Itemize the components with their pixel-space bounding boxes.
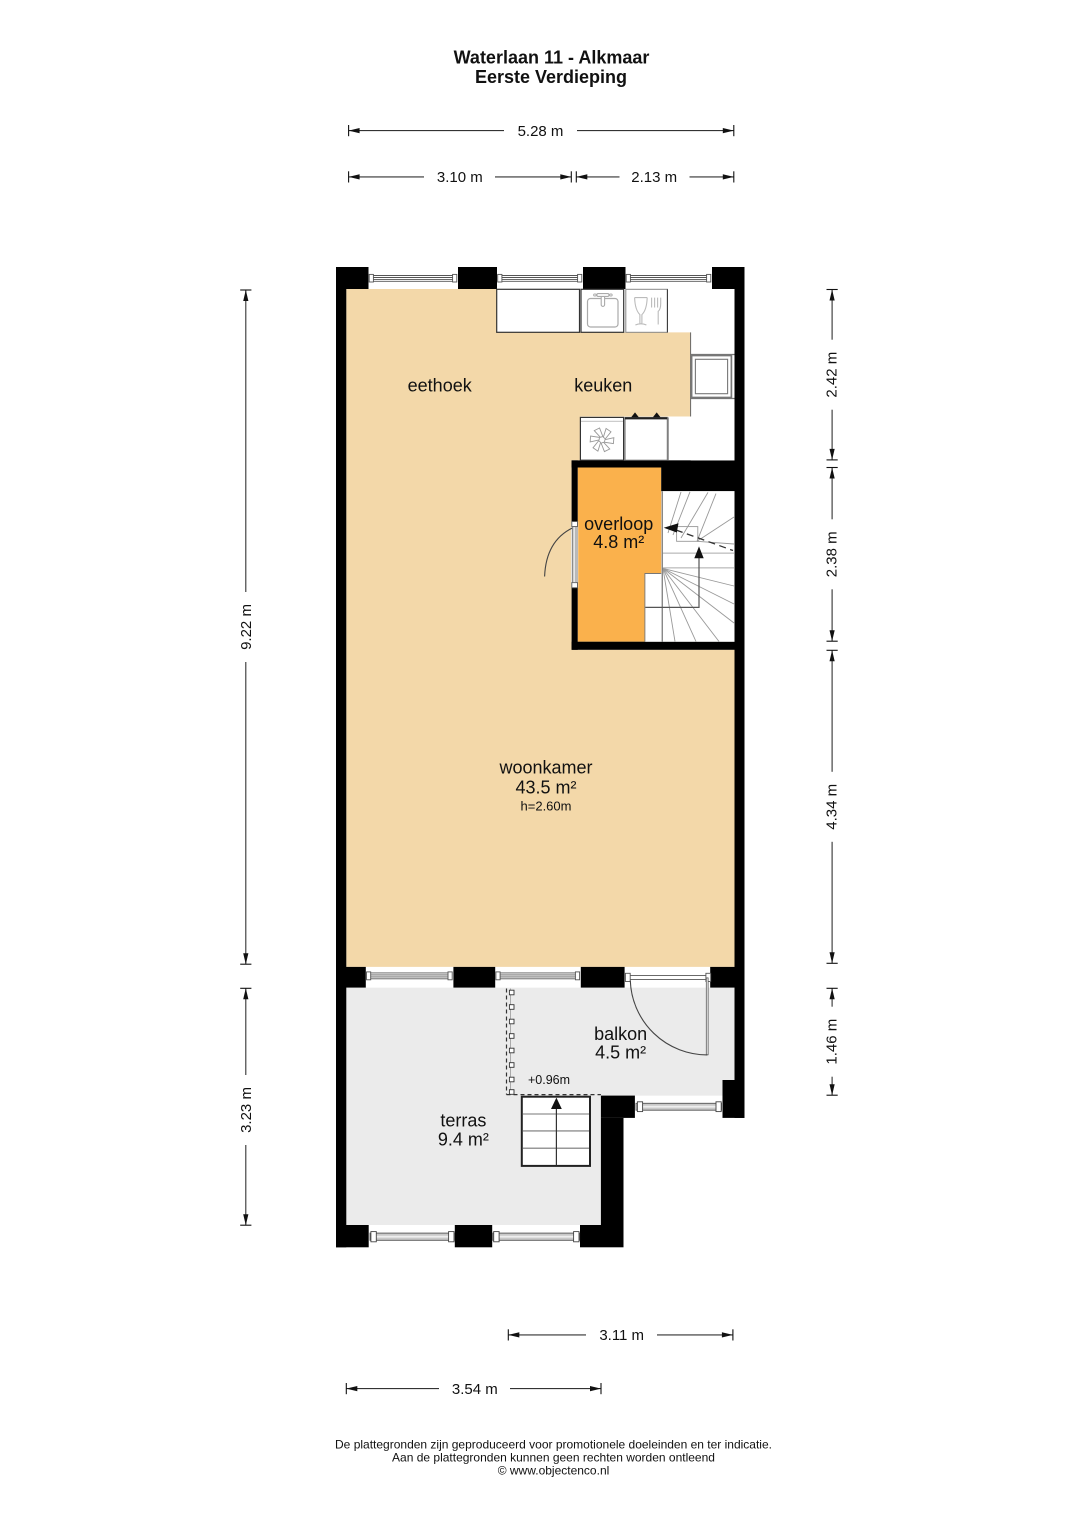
svg-text:overloop: overloop [584, 514, 653, 534]
svg-text:eethoek: eethoek [408, 375, 473, 395]
svg-text:3.10 m: 3.10 m [437, 169, 483, 186]
svg-text:Eerste Verdieping: Eerste Verdieping [475, 67, 627, 87]
svg-text:h=2.60m: h=2.60m [521, 799, 572, 814]
svg-text:© www.objectenco.nl: © www.objectenco.nl [498, 1463, 610, 1477]
svg-text:43.5 m²: 43.5 m² [515, 777, 576, 797]
svg-text:4.34 m: 4.34 m [824, 784, 841, 830]
svg-text:2.42 m: 2.42 m [824, 352, 841, 398]
svg-text:2.13 m: 2.13 m [631, 169, 677, 186]
svg-text:De plattegronden zijn geproduc: De plattegronden zijn geproduceerd voor … [335, 1438, 772, 1452]
svg-text:1.46 m: 1.46 m [824, 1019, 841, 1065]
svg-text:Waterlaan 11 - Alkmaar: Waterlaan 11 - Alkmaar [454, 48, 650, 68]
svg-text:keuken: keuken [574, 375, 632, 395]
svg-text:3.54 m: 3.54 m [452, 1381, 498, 1398]
svg-text:balkon: balkon [594, 1024, 647, 1044]
svg-text:2.38 m: 2.38 m [824, 531, 841, 577]
svg-text:3.11 m: 3.11 m [599, 1327, 644, 1344]
svg-text:terras: terras [440, 1110, 486, 1130]
svg-text:+0.96m: +0.96m [528, 1073, 570, 1087]
svg-text:3.23 m: 3.23 m [238, 1087, 255, 1133]
svg-text:woonkamer: woonkamer [498, 758, 592, 778]
svg-text:4.5 m²: 4.5 m² [595, 1043, 646, 1063]
svg-text:5.28 m: 5.28 m [518, 123, 564, 140]
svg-text:9.22 m: 9.22 m [238, 604, 255, 650]
svg-text:9.4 m²: 9.4 m² [438, 1129, 489, 1149]
svg-text:4.8 m²: 4.8 m² [593, 532, 644, 552]
